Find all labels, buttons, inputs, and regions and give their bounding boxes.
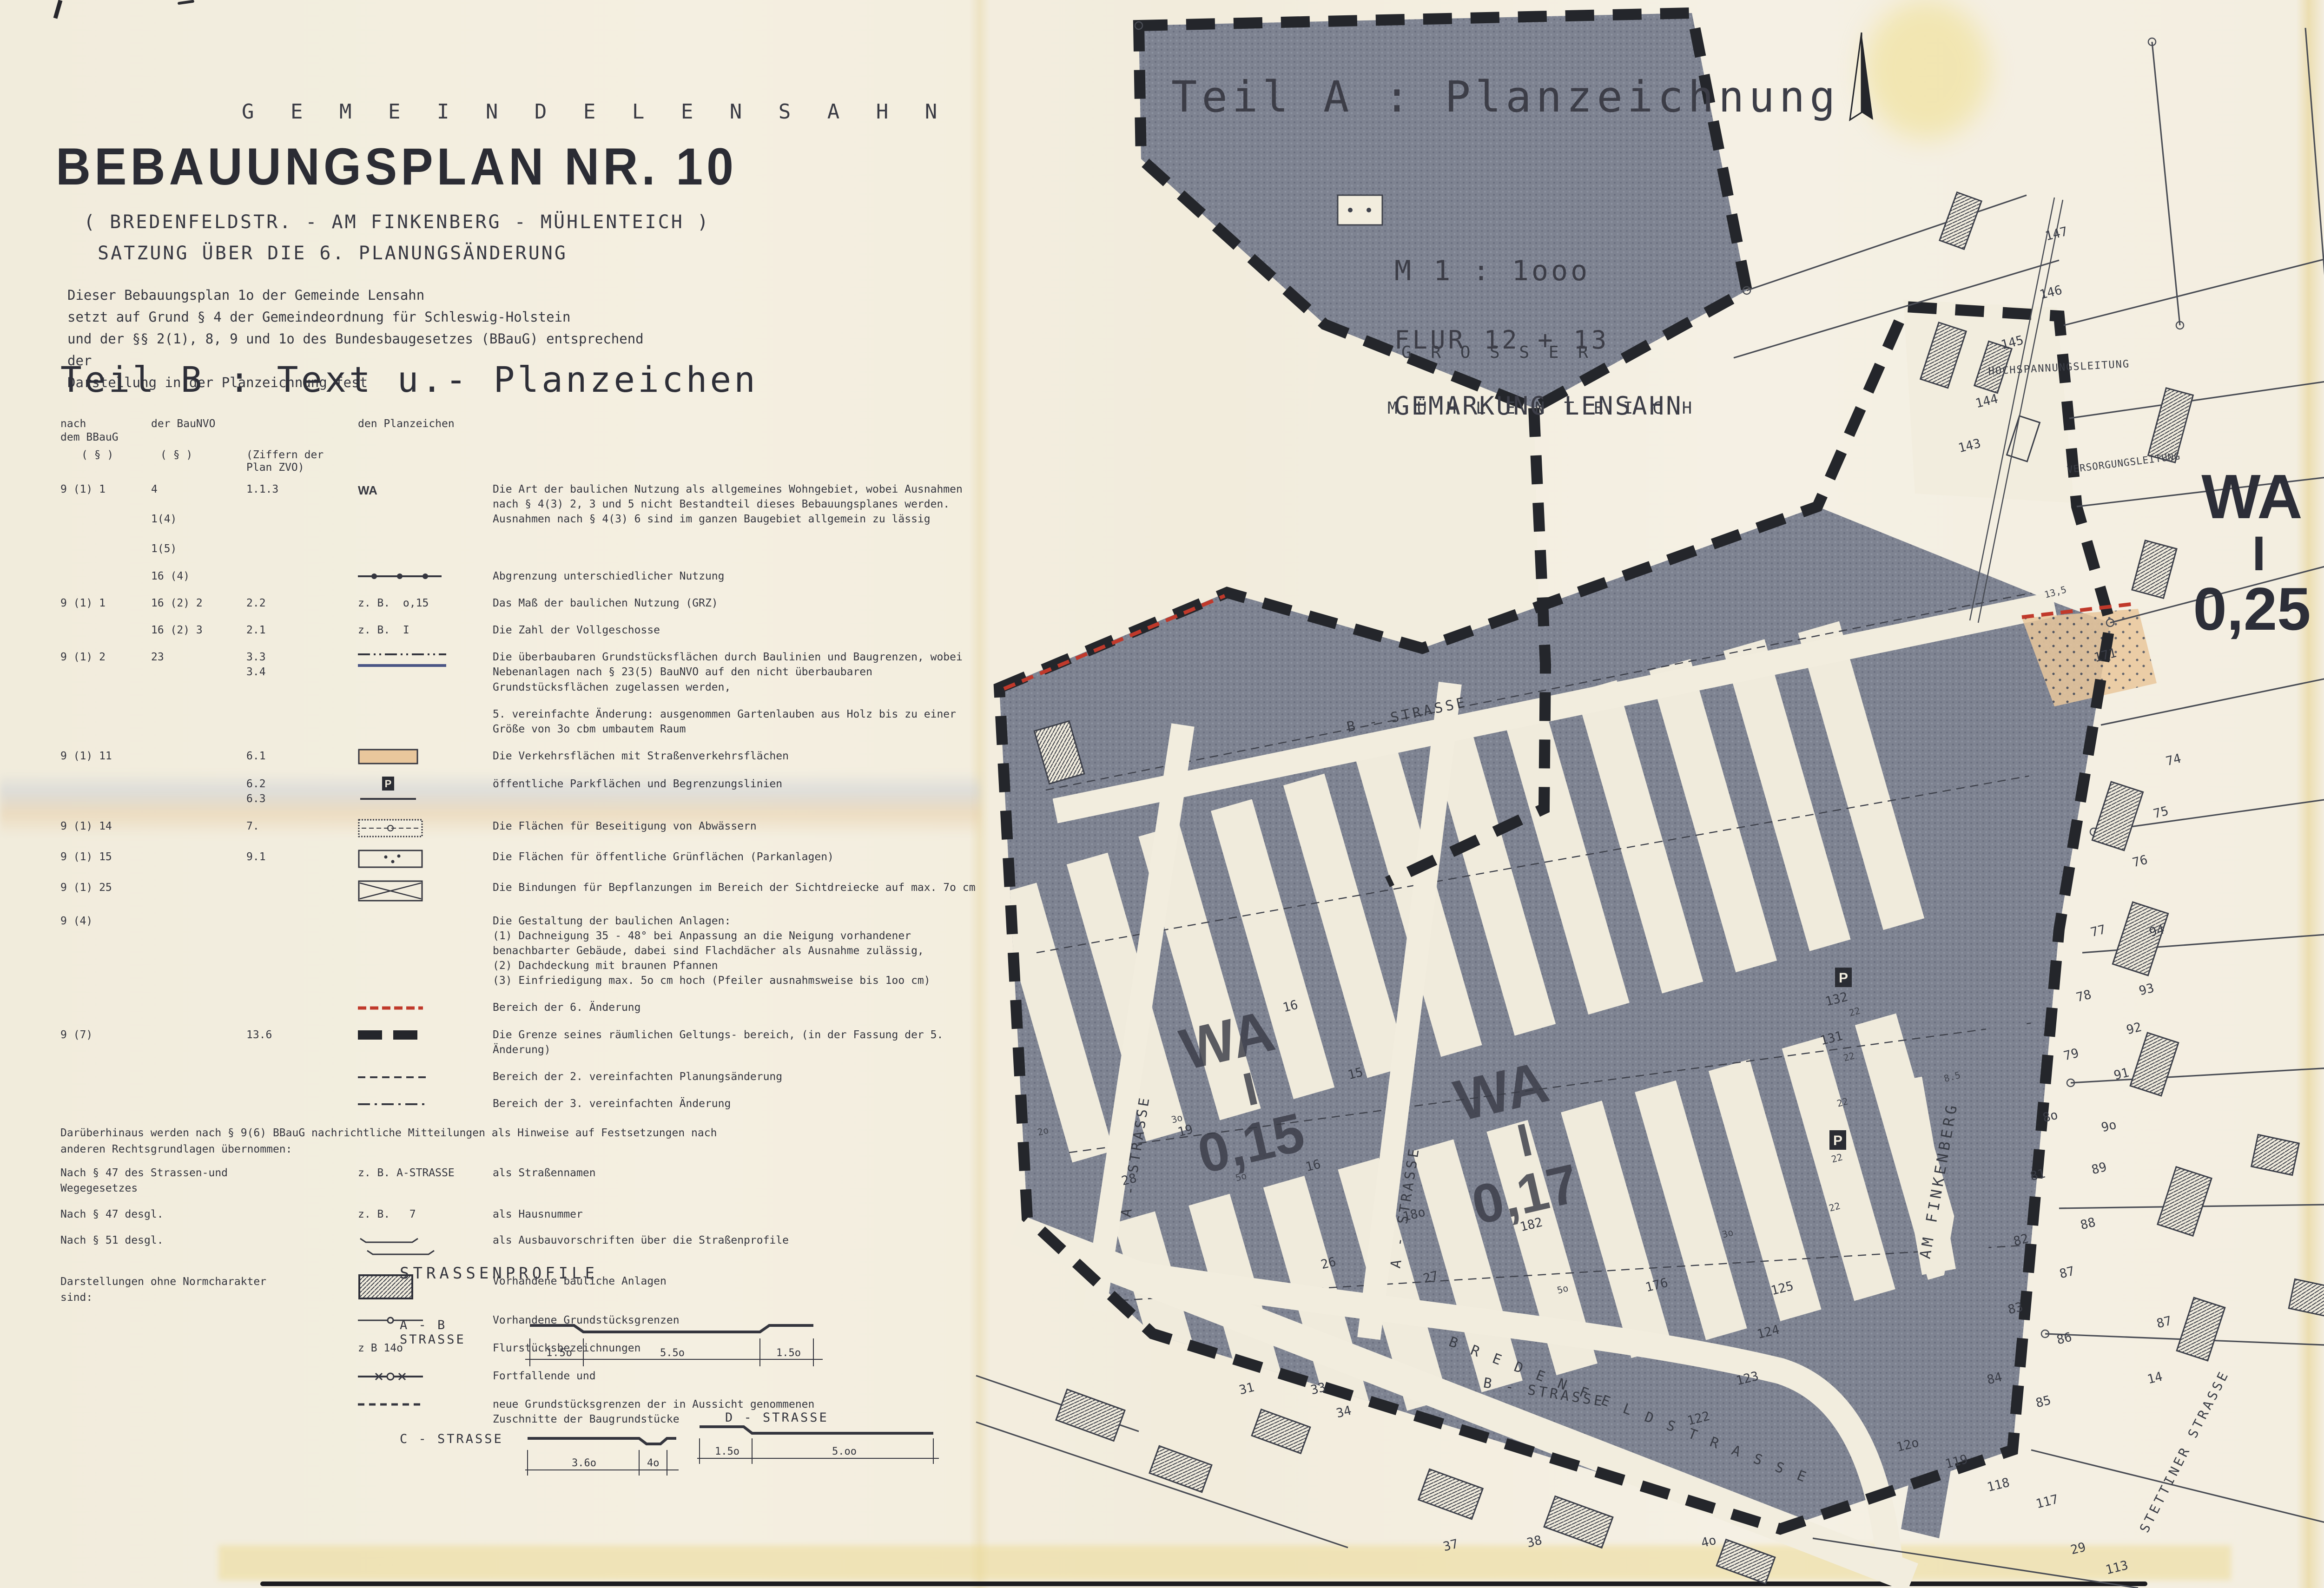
- baulinien-symbol: [358, 650, 446, 670]
- col-bbaug: nach dem BBauG: [60, 417, 151, 444]
- hinweis-row: Nach § 47 des Strassen-und Wegegesetzes …: [60, 1166, 1046, 1195]
- map-gemarkung: GEMARKUNG LENSAHN: [1394, 391, 1683, 421]
- street-profiles: STRASSENPROFILE A - B STRASSE 1.5o 5.5o …: [400, 1264, 911, 1494]
- wa-zone-025: WA I 0,25: [2193, 461, 2311, 643]
- svg-text:1.5o: 1.5o: [776, 1347, 801, 1359]
- hinweis-row: Nach § 51 desgl. als Ausbauvorschriften …: [60, 1233, 1046, 1261]
- svg-text:P: P: [1833, 1133, 1842, 1148]
- profil-symbol: [358, 1233, 437, 1261]
- gruenflaeche-symbol: [358, 850, 423, 868]
- profile-d-drawing: 1.5o 5.oo: [697, 1417, 939, 1483]
- legend-row: 9 (1) 1 4 1(4) 1(5) 1.1.3 WA Die Art der…: [60, 482, 1046, 557]
- street-stettin-label: STETTINER STRASSE: [2137, 1367, 2232, 1535]
- wa-symbol: WA: [358, 483, 377, 497]
- legend-row: 6.2 6.3 P öffentliche Parkflächen und Be…: [60, 777, 1046, 806]
- teil-b-heading: Teil B : Text u.- Planzeichen: [60, 359, 758, 400]
- legend-row: Bereich der 6. Änderung: [60, 1000, 1046, 1015]
- municipality: G E M E I N D E L E N S A H N: [242, 100, 949, 124]
- pump-compound: [1903, 300, 2074, 503]
- verkehr-symbol: [358, 749, 418, 764]
- hinweis-row: Nach § 47 desgl. z. B. 7 als Hausnummer: [60, 1207, 1046, 1222]
- scanned-plan-sheet: P P G R O S S E R M Ü H L E N T E I C H …: [0, 0, 2324, 1588]
- profile-c-name: C - STRASSE: [400, 1432, 507, 1446]
- svg-text:WA: WA: [2201, 461, 2302, 532]
- title-and-legend-panel: G E M E I N D E L E N S A H N BEBAUUNGSP…: [42, 0, 1046, 1588]
- legend-row: 9 (1) 2 23 3.3 3.4 Die überbaubaren Grun…: [60, 650, 1046, 695]
- svg-text:P: P: [1839, 970, 1848, 986]
- legend-row: 5. vereinfachte Änderung: ausgenommen Ga…: [60, 707, 1046, 737]
- legend-row: 9 (1) 1 16 (2) 2 2.2 z. B. o,15 Das Maß …: [60, 596, 1046, 611]
- bereich3-symbol: [358, 1101, 428, 1107]
- profile-ab-drawing: 1.5o 5.5o 1.5o: [525, 1315, 823, 1385]
- legend-subheader: ( § ) ( § ) (Ziffern der Plan ZVO): [60, 449, 1046, 474]
- sichtdreieck-symbol: [358, 880, 423, 902]
- profiles-title: STRASSENPROFILE: [400, 1264, 911, 1283]
- legend-row: Bereich der 2. vereinfachten Planungsänd…: [60, 1069, 1046, 1084]
- plan-title: BEBAUUNGSPLAN NR. 10: [56, 137, 737, 197]
- profile-ab-name: A - B STRASSE: [400, 1318, 507, 1347]
- svg-text:P: P: [385, 778, 392, 790]
- svg-text:1.5o: 1.5o: [546, 1347, 573, 1359]
- map-flur: FLUR 12 + 13: [1394, 325, 1609, 355]
- col-planzeichen: den Planzeichen: [358, 417, 493, 444]
- hinweis-intro: Darüberhinaus werden nach § 9(6) BBauG n…: [60, 1125, 734, 1157]
- teil-a-heading: Teil A : Planzeichnung: [1171, 72, 1840, 122]
- utility-hut: [1338, 195, 1382, 225]
- abgrenzung-symbol: [358, 572, 442, 580]
- svg-text:4o: 4o: [647, 1457, 660, 1469]
- park-symbol: P: [358, 777, 418, 804]
- legend-row: 16 (4) Abgrenzung unterschiedlicher Nutz…: [60, 569, 1046, 584]
- col-baunvo: der BauNVO: [151, 417, 246, 444]
- flurstueck-example: z B 14o: [358, 1342, 403, 1354]
- hausnummer-example: z. B. 7: [358, 1208, 416, 1220]
- legend-row: 9 (7) 13.6 Die Grenze seines räumlichen …: [60, 1028, 1046, 1057]
- legend-row: 9 (4) Die Gestaltung der baulichen Anlag…: [60, 914, 1046, 988]
- svg-text:3.6o: 3.6o: [572, 1457, 596, 1469]
- legend-row: 9 (1) 15 9.1 Die Flächen für öffentliche…: [60, 850, 1046, 868]
- map-scale: M 1 : 1ooo: [1394, 255, 1590, 287]
- legend-row: 9 (1) 14 7. Die Flächen für Beseitigung …: [60, 819, 1046, 837]
- svg-text:1.5o: 1.5o: [715, 1446, 739, 1457]
- legend-row: Bereich der 3. vereinfachten Änderung: [60, 1096, 1046, 1111]
- versorgung-label: VERSORGUNGSLEITUNG: [2067, 450, 2181, 475]
- svg-text:5.5o: 5.5o: [660, 1347, 685, 1359]
- bereich6-symbol: [358, 1005, 423, 1011]
- strassenname-example: z. B. A-STRASSE: [358, 1167, 455, 1179]
- svg-text:I: I: [2252, 527, 2265, 581]
- legend-row: 9 (1) 11 6.1 Die Verkehrsflächen mit Str…: [60, 749, 1046, 764]
- abwasser-symbol: [358, 819, 423, 837]
- bereich2-symbol: [358, 1074, 428, 1080]
- north-arrow: [1850, 33, 1873, 120]
- plan-subtitle: ( BREDENFELDSTR. - AM FINKENBERG - MÜHLE…: [84, 211, 710, 233]
- legend-row: 16 (2) 3 2.1 z. B. I Die Zahl der Vollge…: [60, 623, 1046, 638]
- svg-text:0,25: 0,25: [2193, 575, 2311, 643]
- geltungsbereich-symbol: [358, 1029, 428, 1041]
- geschosse-example: z. B. I: [358, 624, 409, 636]
- grz-example: z. B. o,15: [358, 597, 429, 609]
- legend-row: 9 (1) 25 Die Bindungen für Bepflanzungen…: [60, 880, 1046, 902]
- legend-header: nach dem BBauG der BauNVO den Planzeiche…: [60, 417, 1046, 444]
- svg-text:5.oo: 5.oo: [832, 1446, 857, 1457]
- profile-c-drawing: 3.6o 4o: [525, 1429, 679, 1494]
- plan-subtitle-2: SATZUNG ÜBER DIE 6. PLANUNGSÄNDERUNG: [98, 243, 568, 264]
